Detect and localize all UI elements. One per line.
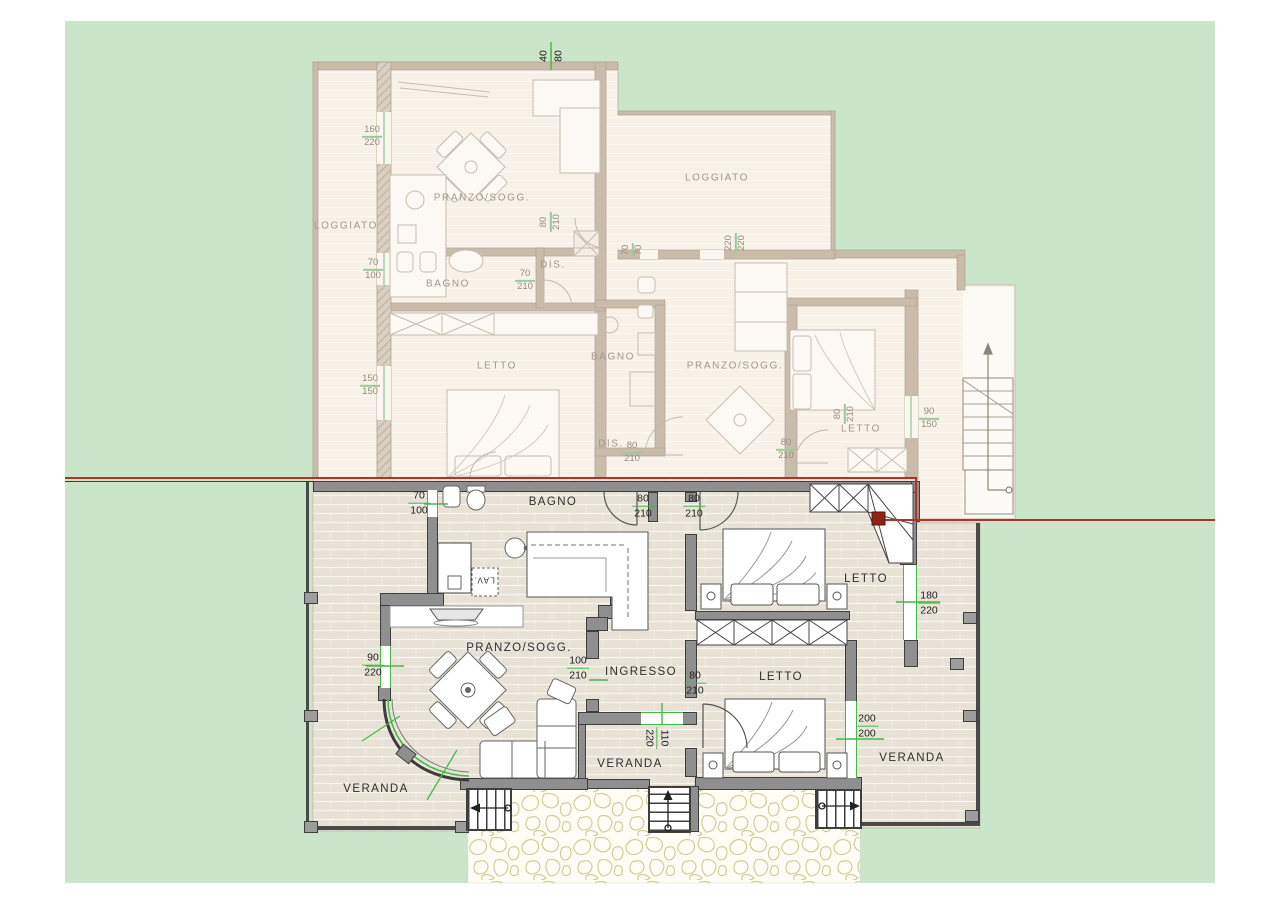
curved-glass-wall: [362, 699, 469, 800]
bed-2: [703, 699, 847, 778]
kitchen-counter: [527, 532, 648, 630]
stair-arrows: [470, 790, 860, 831]
tv-icon: [430, 609, 483, 620]
overlay-drawing: [0, 0, 1280, 905]
shower-drain: [448, 576, 461, 589]
dimension-ticks: [366, 42, 940, 739]
round-sink-icon: [505, 538, 525, 558]
bed-1: [701, 529, 847, 609]
dining-table: [409, 631, 528, 750]
wc-icon: [467, 490, 485, 510]
washbasin-box: [472, 568, 498, 596]
floorplan-canvas: LOGGIATOPRANZO/SOGG.BAGNODIS.LETTOLOGGIA…: [0, 0, 1280, 905]
wardrobe: [697, 620, 847, 645]
section-line: [65, 478, 1215, 525]
